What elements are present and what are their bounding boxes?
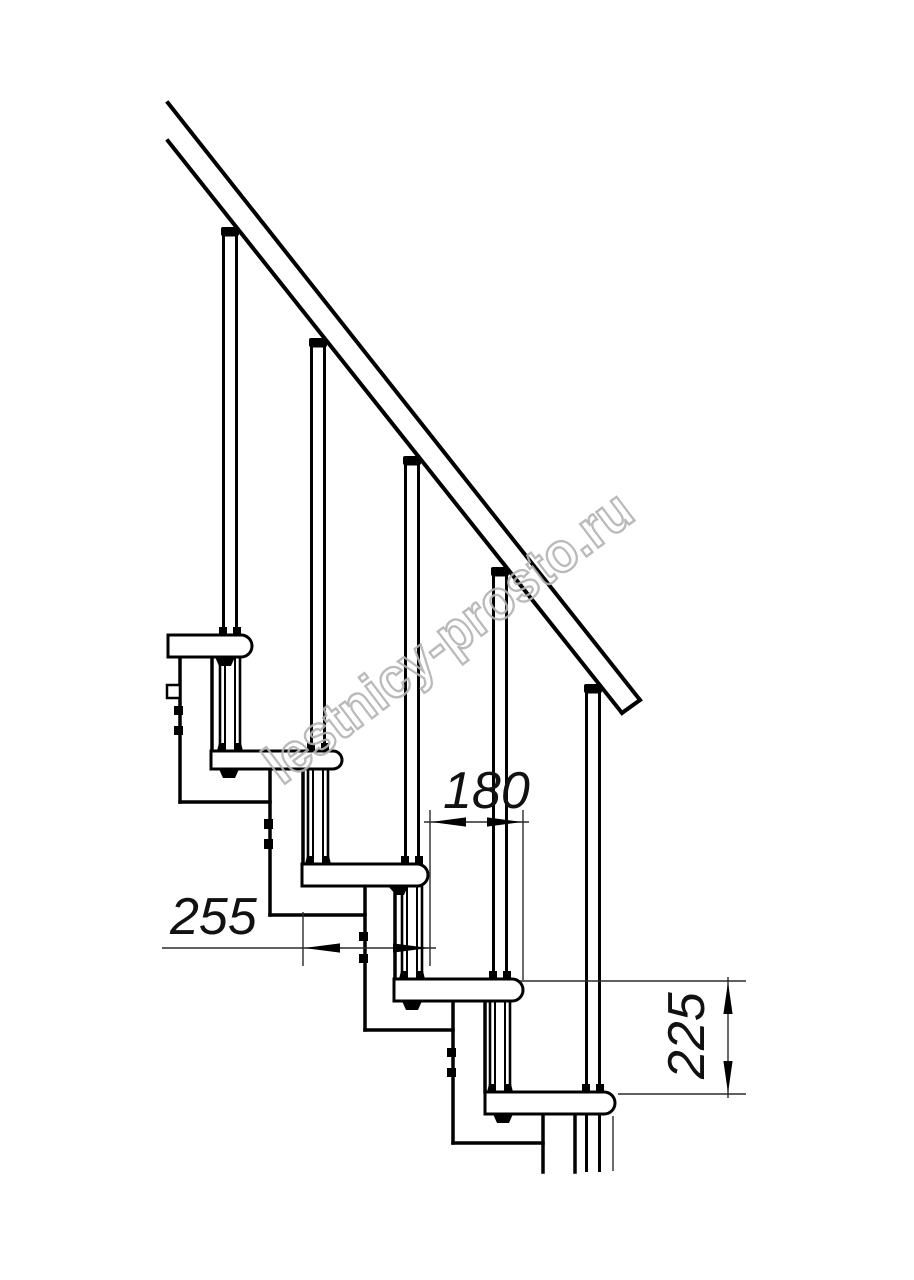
bolt-icon <box>359 932 368 941</box>
baluster-1-lower <box>220 657 240 751</box>
arrow-down-icon <box>723 1061 732 1093</box>
baluster-1 <box>224 235 237 635</box>
tread-4 <box>394 979 523 1001</box>
baluster-5 <box>587 692 600 1092</box>
tread-5 <box>485 1092 615 1114</box>
baluster-5-lower <box>587 1114 600 1172</box>
dimension-step-run: 180 <box>424 762 530 980</box>
baluster-4-lower <box>490 1001 510 1092</box>
bolt-icon <box>359 954 368 963</box>
bolt-icon <box>264 839 273 849</box>
arrow-left-icon <box>304 943 340 952</box>
dimension-label-255: 255 <box>169 888 258 946</box>
drawing-canvas: 255 180 225 lestnicy-prosto.ru <box>0 0 914 1280</box>
dimension-label-180: 180 <box>443 762 530 820</box>
bolt-icon <box>447 1068 456 1077</box>
bolt-icon <box>174 726 183 735</box>
bolt-icon <box>447 1048 456 1057</box>
dimension-label-225: 225 <box>658 991 716 1080</box>
dimension-step-rise: 225 <box>520 977 746 1171</box>
bolt-icon <box>174 706 183 715</box>
bolt-icon <box>264 819 273 829</box>
tread-3 <box>302 864 428 886</box>
module-bracket-tab <box>167 685 180 698</box>
stair-technical-drawing: 255 180 225 lestnicy-prosto.ru <box>0 0 914 1280</box>
baluster-3-lower <box>402 886 422 979</box>
arrow-up-icon <box>723 982 732 1014</box>
baluster-2-lower <box>308 769 328 864</box>
tread-1 <box>168 635 252 657</box>
baluster-2 <box>312 346 325 751</box>
